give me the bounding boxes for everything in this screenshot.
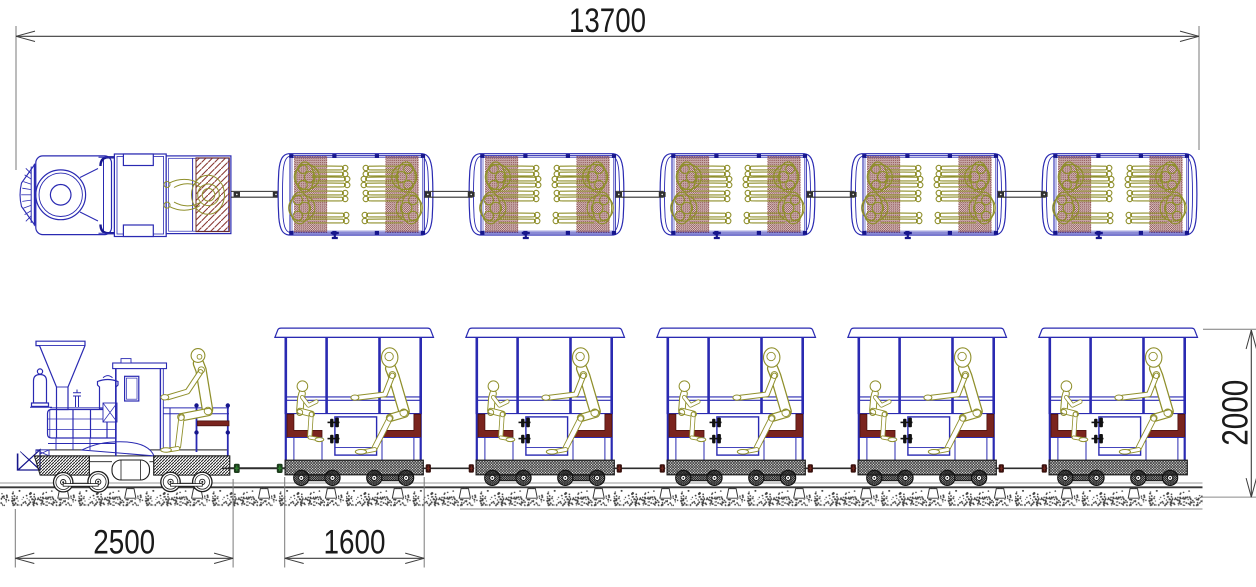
svg-text:13700: 13700 bbox=[569, 2, 646, 40]
svg-text:1600: 1600 bbox=[324, 524, 386, 562]
svg-text:2000: 2000 bbox=[1215, 380, 1256, 446]
svg-text:2500: 2500 bbox=[93, 524, 155, 562]
